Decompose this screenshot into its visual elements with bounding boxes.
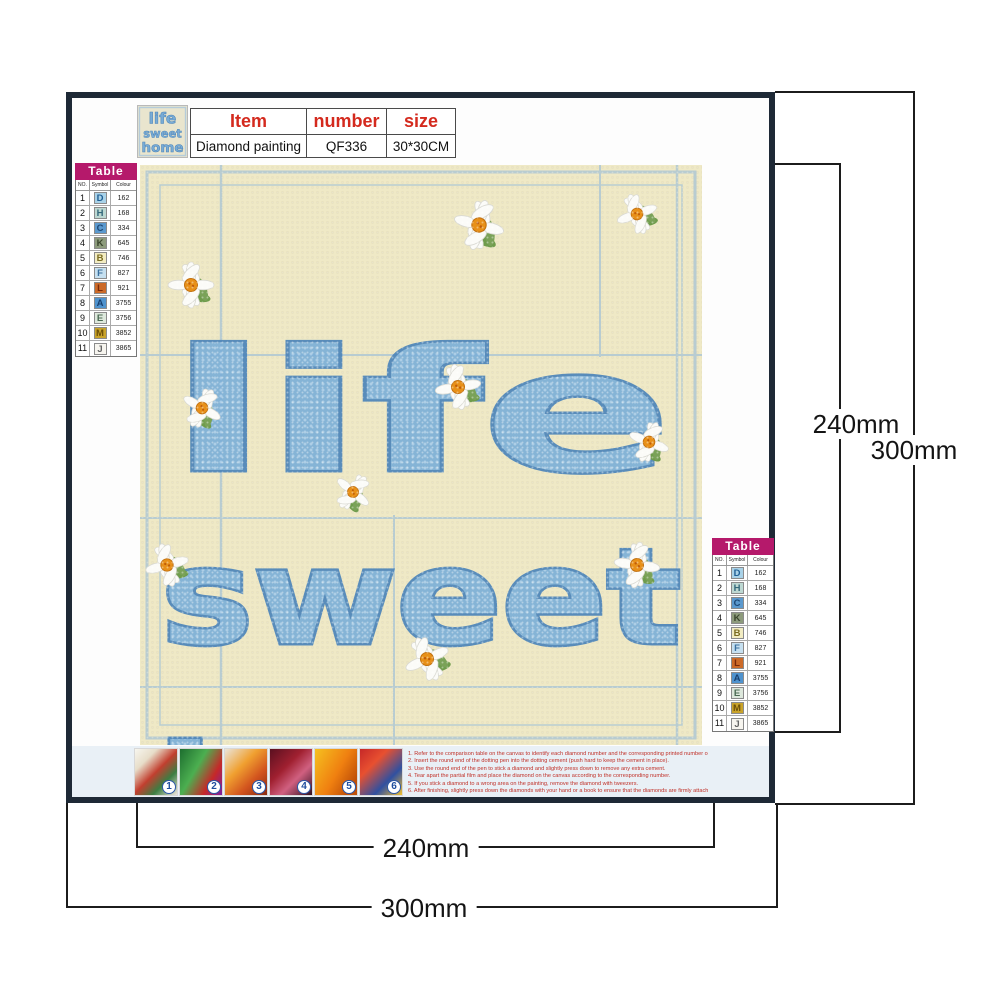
legend-color-number: 746: [748, 630, 773, 637]
step-thumbnail-2: 2: [179, 748, 223, 796]
legend-color-number: 921: [111, 285, 136, 292]
legend-row: 3 C 334: [76, 221, 136, 236]
legend-row-number: 10: [713, 701, 727, 715]
symbol-chip: H: [94, 207, 107, 219]
legend-symbol-cell: K: [727, 611, 748, 625]
legend-symbol-cell: B: [727, 626, 748, 640]
legend-color-number: 168: [111, 210, 136, 217]
legend-color-number: 3865: [748, 720, 773, 727]
legend-header-row: NO. Symbol Colour: [76, 180, 136, 191]
legend-rows: 1 D 162 2 H 168 3 C 334 4 K 645 5 B 746 …: [713, 566, 773, 731]
symbol-chip: L: [94, 282, 107, 294]
legend-row-number: 4: [713, 611, 727, 625]
dim-bottom-300-left-tick: [66, 803, 68, 908]
legend-row: 5 B 746: [76, 251, 136, 266]
legend-symbol-cell: F: [90, 266, 111, 280]
logo-word-3: home: [142, 141, 184, 156]
legend-symbol-cell: C: [90, 221, 111, 235]
legend-col-colour: Colour: [111, 180, 136, 190]
step-number-badge: 6: [387, 780, 401, 794]
spec-value-item: Diamond painting: [191, 135, 307, 158]
symbol-chip: J: [731, 718, 744, 730]
step-thumbnail-5: 5: [314, 748, 358, 796]
legend-row-number: 7: [713, 656, 727, 670]
legend-row: 6 F 827: [76, 266, 136, 281]
legend-row-number: 7: [76, 281, 90, 295]
legend-body: NO. Symbol Colour 1 D 162 2 H 168 3 C 33…: [75, 180, 137, 357]
legend-color-number: 3756: [111, 315, 136, 322]
step-thumbnail-4: 4: [269, 748, 313, 796]
legend-row: 1 D 162: [76, 191, 136, 206]
legend-row: 5 B 746: [713, 626, 773, 641]
symbol-chip: K: [94, 237, 107, 249]
symbol-chip: E: [731, 687, 744, 699]
legend-row: 8 A 3755: [76, 296, 136, 311]
legend-color-number: 3756: [748, 690, 773, 697]
legend-symbol-cell: A: [90, 296, 111, 310]
instruction-line: 3. Use the round end of the pen to stick…: [408, 766, 708, 773]
symbol-chip: B: [94, 252, 107, 264]
legend-symbol-cell: L: [727, 656, 748, 670]
legend-row: 2 H 168: [76, 206, 136, 221]
legend-row: 1 D 162: [713, 566, 773, 581]
step-number-badge: 5: [342, 780, 356, 794]
legend-color-number: 827: [748, 645, 773, 652]
dim-right-240-top-tick: [775, 163, 840, 165]
instruction-line: 1. Refer to the comparison table on the …: [408, 751, 708, 758]
legend-symbol-cell: H: [727, 581, 748, 595]
spec-header-row: Item number size: [191, 109, 456, 135]
dim-bottom-240-right-tick: [713, 803, 715, 848]
symbol-chip: C: [731, 597, 744, 609]
step-thumbnails: 1 2 3 4 5 6: [134, 748, 403, 796]
legend-color-number: 168: [748, 585, 773, 592]
symbol-chip: M: [731, 702, 744, 714]
legend-row: 7 L 921: [76, 281, 136, 296]
legend-color-number: 334: [748, 600, 773, 607]
legend-row-number: 9: [713, 686, 727, 700]
legend-color-number: 3865: [111, 345, 136, 352]
product-image-page: { "header_table": { "columns": ["Item", …: [0, 0, 1000, 1000]
legend-color-number: 334: [111, 225, 136, 232]
dim-right-300-label: 300mm: [862, 435, 967, 465]
legend-row-number: 1: [76, 191, 90, 205]
color-legend-right: Table NO. Symbol Colour 1 D 162 2 H 168 …: [712, 538, 774, 732]
legend-symbol-cell: M: [727, 701, 748, 715]
legend-row-number: 5: [713, 626, 727, 640]
dim-right-240-line: [839, 163, 841, 733]
legend-row-number: 9: [76, 311, 90, 325]
legend-symbol-cell: B: [90, 251, 111, 265]
legend-col-colour: Colour: [748, 555, 773, 565]
instruction-line: 5. If you stick a diamond to a wrong are…: [408, 781, 708, 788]
legend-symbol-cell: E: [90, 311, 111, 325]
legend-row-number: 8: [713, 671, 727, 685]
legend-row: 4 K 645: [76, 236, 136, 251]
spec-header-size: size: [387, 109, 456, 135]
legend-body: NO. Symbol Colour 1 D 162 2 H 168 3 C 33…: [712, 555, 774, 732]
legend-row: 8 A 3755: [713, 671, 773, 686]
legend-row-number: 11: [713, 716, 727, 731]
legend-header-row: NO. Symbol Colour: [713, 555, 773, 566]
legend-col-no: NO.: [76, 180, 90, 190]
step-thumbnail-1: 1: [134, 748, 178, 796]
symbol-chip: M: [94, 327, 107, 339]
symbol-chip: F: [94, 267, 107, 279]
instruction-list: 1. Refer to the comparison table on the …: [408, 751, 708, 795]
legend-symbol-cell: K: [90, 236, 111, 250]
step-number-badge: 3: [252, 780, 266, 794]
legend-row-number: 5: [76, 251, 90, 265]
legend-col-symbol: Symbol: [727, 555, 748, 565]
symbol-chip: D: [731, 567, 744, 579]
logo-word-1: life: [149, 109, 177, 127]
legend-row: 6 F 827: [713, 641, 773, 656]
legend-row: 7 L 921: [713, 656, 773, 671]
legend-symbol-cell: E: [727, 686, 748, 700]
legend-row-number: 3: [713, 596, 727, 610]
symbol-chip: B: [731, 627, 744, 639]
legend-symbol-cell: J: [727, 716, 748, 731]
legend-color-number: 3852: [748, 705, 773, 712]
dim-bottom-240-label: 240mm: [374, 833, 479, 863]
color-legend-left: Table NO. Symbol Colour 1 D 162 2 H 168 …: [75, 163, 137, 357]
legend-color-number: 162: [111, 195, 136, 202]
step-number-badge: 1: [162, 780, 176, 794]
legend-row: 10 M 3852: [713, 701, 773, 716]
dim-bottom-240-left-tick: [136, 803, 138, 848]
legend-row: 9 E 3756: [76, 311, 136, 326]
step-number-badge: 4: [297, 780, 311, 794]
step-thumbnail-6: 6: [359, 748, 403, 796]
legend-row: 9 E 3756: [713, 686, 773, 701]
legend-title: Table: [712, 538, 774, 555]
symbol-chip: H: [731, 582, 744, 594]
legend-symbol-cell: F: [727, 641, 748, 655]
step-thumbnail-3: 3: [224, 748, 268, 796]
step-number-badge: 2: [207, 780, 221, 794]
symbol-chip: A: [731, 672, 744, 684]
legend-row-number: 2: [76, 206, 90, 220]
legend-symbol-cell: M: [90, 326, 111, 340]
legend-symbol-cell: D: [90, 191, 111, 205]
legend-symbol-cell: H: [90, 206, 111, 220]
logo-artwork: life sweet home: [137, 105, 188, 158]
legend-rows: 1 D 162 2 H 168 3 C 334 4 K 645 5 B 746 …: [76, 191, 136, 356]
dim-right-300-top-tick: [775, 91, 915, 93]
legend-row-number: 6: [713, 641, 727, 655]
instruction-line: 4. Tear apart the partial film and place…: [408, 773, 708, 780]
legend-row: 10 M 3852: [76, 326, 136, 341]
spec-header-item: Item: [191, 109, 307, 135]
legend-color-number: 3755: [748, 675, 773, 682]
legend-row-number: 6: [76, 266, 90, 280]
spec-value-row: Diamond painting QF336 30*30CM: [191, 135, 456, 158]
dim-bottom-300-label: 300mm: [372, 893, 477, 923]
legend-row: 11 J 3865: [76, 341, 136, 356]
symbol-chip: L: [731, 657, 744, 669]
dim-right-240-bottom-tick: [775, 731, 840, 733]
legend-col-no: NO.: [713, 555, 727, 565]
legend-color-number: 921: [748, 660, 773, 667]
legend-symbol-cell: C: [727, 596, 748, 610]
instruction-line: 6. After finishing, slightly press down …: [408, 788, 708, 795]
legend-row: 3 C 334: [713, 596, 773, 611]
symbol-chip: C: [94, 222, 107, 234]
legend-row-number: 8: [76, 296, 90, 310]
legend-color-number: 3852: [111, 330, 136, 337]
logo-word-2: sweet: [143, 127, 182, 141]
legend-row-number: 3: [76, 221, 90, 235]
legend-color-number: 827: [111, 270, 136, 277]
legend-color-number: 746: [111, 255, 136, 262]
symbol-chip: D: [94, 192, 107, 204]
legend-title: Table: [75, 163, 137, 180]
symbol-chip: J: [94, 343, 107, 355]
legend-row-number: 4: [76, 236, 90, 250]
legend-row-number: 11: [76, 341, 90, 356]
symbol-chip: K: [731, 612, 744, 624]
spec-header-number: number: [307, 109, 387, 135]
legend-color-number: 645: [748, 615, 773, 622]
spec-value-size: 30*30CM: [387, 135, 456, 158]
dim-right-300-bottom-tick: [775, 803, 915, 805]
spec-table: Item number size Diamond painting QF336 …: [190, 108, 456, 158]
spec-value-number: QF336: [307, 135, 387, 158]
legend-row: 2 H 168: [713, 581, 773, 596]
legend-color-number: 162: [748, 570, 773, 577]
legend-color-number: 3755: [111, 300, 136, 307]
legend-row-number: 10: [76, 326, 90, 340]
canvas-artwork: life sweet home: [140, 165, 702, 745]
dim-bottom-300-right-tick: [776, 803, 778, 908]
legend-color-number: 645: [111, 240, 136, 247]
legend-row: 4 K 645: [713, 611, 773, 626]
legend-col-symbol: Symbol: [90, 180, 111, 190]
legend-symbol-cell: A: [727, 671, 748, 685]
instruction-line: 2. Insert the round end of the dotting p…: [408, 758, 708, 765]
legend-row-number: 1: [713, 566, 727, 580]
legend-row: 11 J 3865: [713, 716, 773, 731]
legend-symbol-cell: L: [90, 281, 111, 295]
legend-symbol-cell: D: [727, 566, 748, 580]
legend-row-number: 2: [713, 581, 727, 595]
symbol-chip: E: [94, 312, 107, 324]
legend-symbol-cell: J: [90, 341, 111, 356]
symbol-chip: A: [94, 297, 107, 309]
symbol-chip: F: [731, 642, 744, 654]
